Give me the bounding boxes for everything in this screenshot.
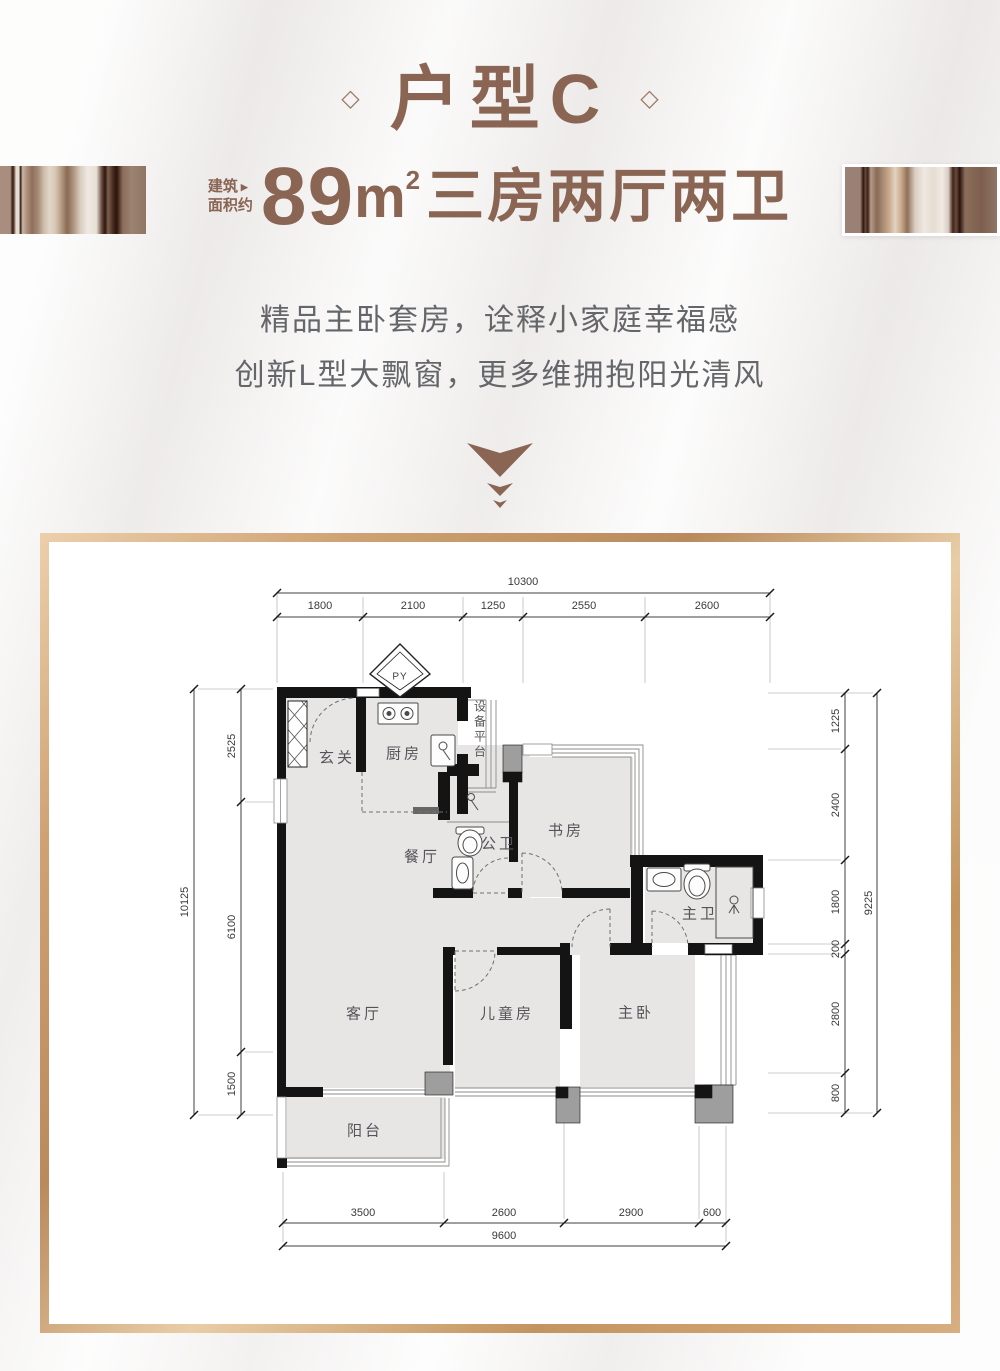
page-title-row: ◇ 户型C ◇ [0,64,1000,134]
dim-right-seg-1: 2400 [830,793,842,817]
dim-left-seg-0: 2525 [226,734,238,758]
dim-left-seg-2: 1500 [226,1072,238,1096]
tagline-2: 创新L型大飘窗，更多维拥抱阳光清风 [0,350,1000,394]
room-label-entry: 玄关 [319,747,355,768]
room-label-kitchen: 厨房 [386,743,422,764]
down-arrow-icon [467,443,533,509]
dim-bottom-seg-3: 600 [703,1207,721,1219]
dim-right-seg-4: 2800 [830,1002,842,1026]
deco-diamond-right-icon: ◇ [640,87,658,111]
dim-right-seg-2: 1800 [830,890,842,914]
tagline-1: 精品主卧套房，诠释小家庭幸福感 [0,295,1000,339]
room-label-living: 客厅 [346,1003,382,1024]
dim-left-seg-1: 6100 [226,915,238,939]
dim-top-seg-3: 2550 [572,600,596,612]
area-unit: m2 [354,167,420,227]
area-number: 89 [261,156,354,238]
deco-diamond-left-icon: ◇ [341,87,359,111]
dim-right-seg-0: 1225 [830,709,842,733]
dim-right-total: 9225 [863,891,875,915]
page-title: 户型C [390,64,611,134]
area-headline: 建筑 ▶ 面积约 89 m2 三房两厅两卫 [0,156,1000,238]
room-label-equipment-platform: 设备平台 [472,700,489,760]
dim-top-seg-2: 1250 [481,600,505,612]
dim-right-seg-3: 200 [830,940,842,958]
room-label-public-bath: 公卫 [481,833,517,854]
room-label-dining: 餐厅 [404,846,440,867]
room-label-balcony: 阳台 [347,1120,383,1141]
poster-page: ◇ 户型C ◇ 建筑 ▶ 面积约 89 m2 三房两厅两卫 精品主卧套房，诠释小… [0,0,1000,1371]
area-prefix: 建筑 ▶ 面积约 [208,178,253,216]
room-label-master-bath: 主卫 [682,903,718,924]
dim-left-total: 10125 [179,887,191,918]
right-triangle-icon: ▶ [241,183,248,192]
dim-right-seg-5: 800 [830,1084,842,1102]
area-prefix-line2: 面积约 [208,197,253,216]
area-room-count: 三房两厅两卫 [426,168,792,226]
area-unit-sup: 2 [406,165,420,195]
shaft-label-py: PY [392,672,407,683]
dim-bottom-seg-0: 3500 [351,1207,375,1219]
room-label-master-bedroom: 主卧 [618,1002,654,1023]
dim-top-seg-4: 2600 [695,600,719,612]
dim-top-seg-1: 2100 [401,600,425,612]
dim-bottom-seg-2: 2900 [619,1207,643,1219]
dim-bottom-total: 9600 [492,1230,516,1242]
dim-top-seg-0: 1800 [308,600,332,612]
room-label-study: 书房 [548,820,584,841]
dim-top-total: 10300 [508,576,539,588]
dim-bottom-seg-1: 2600 [492,1207,516,1219]
area-prefix-line1: 建筑 [208,178,238,197]
room-label-kids-room: 儿童房 [480,1003,534,1024]
